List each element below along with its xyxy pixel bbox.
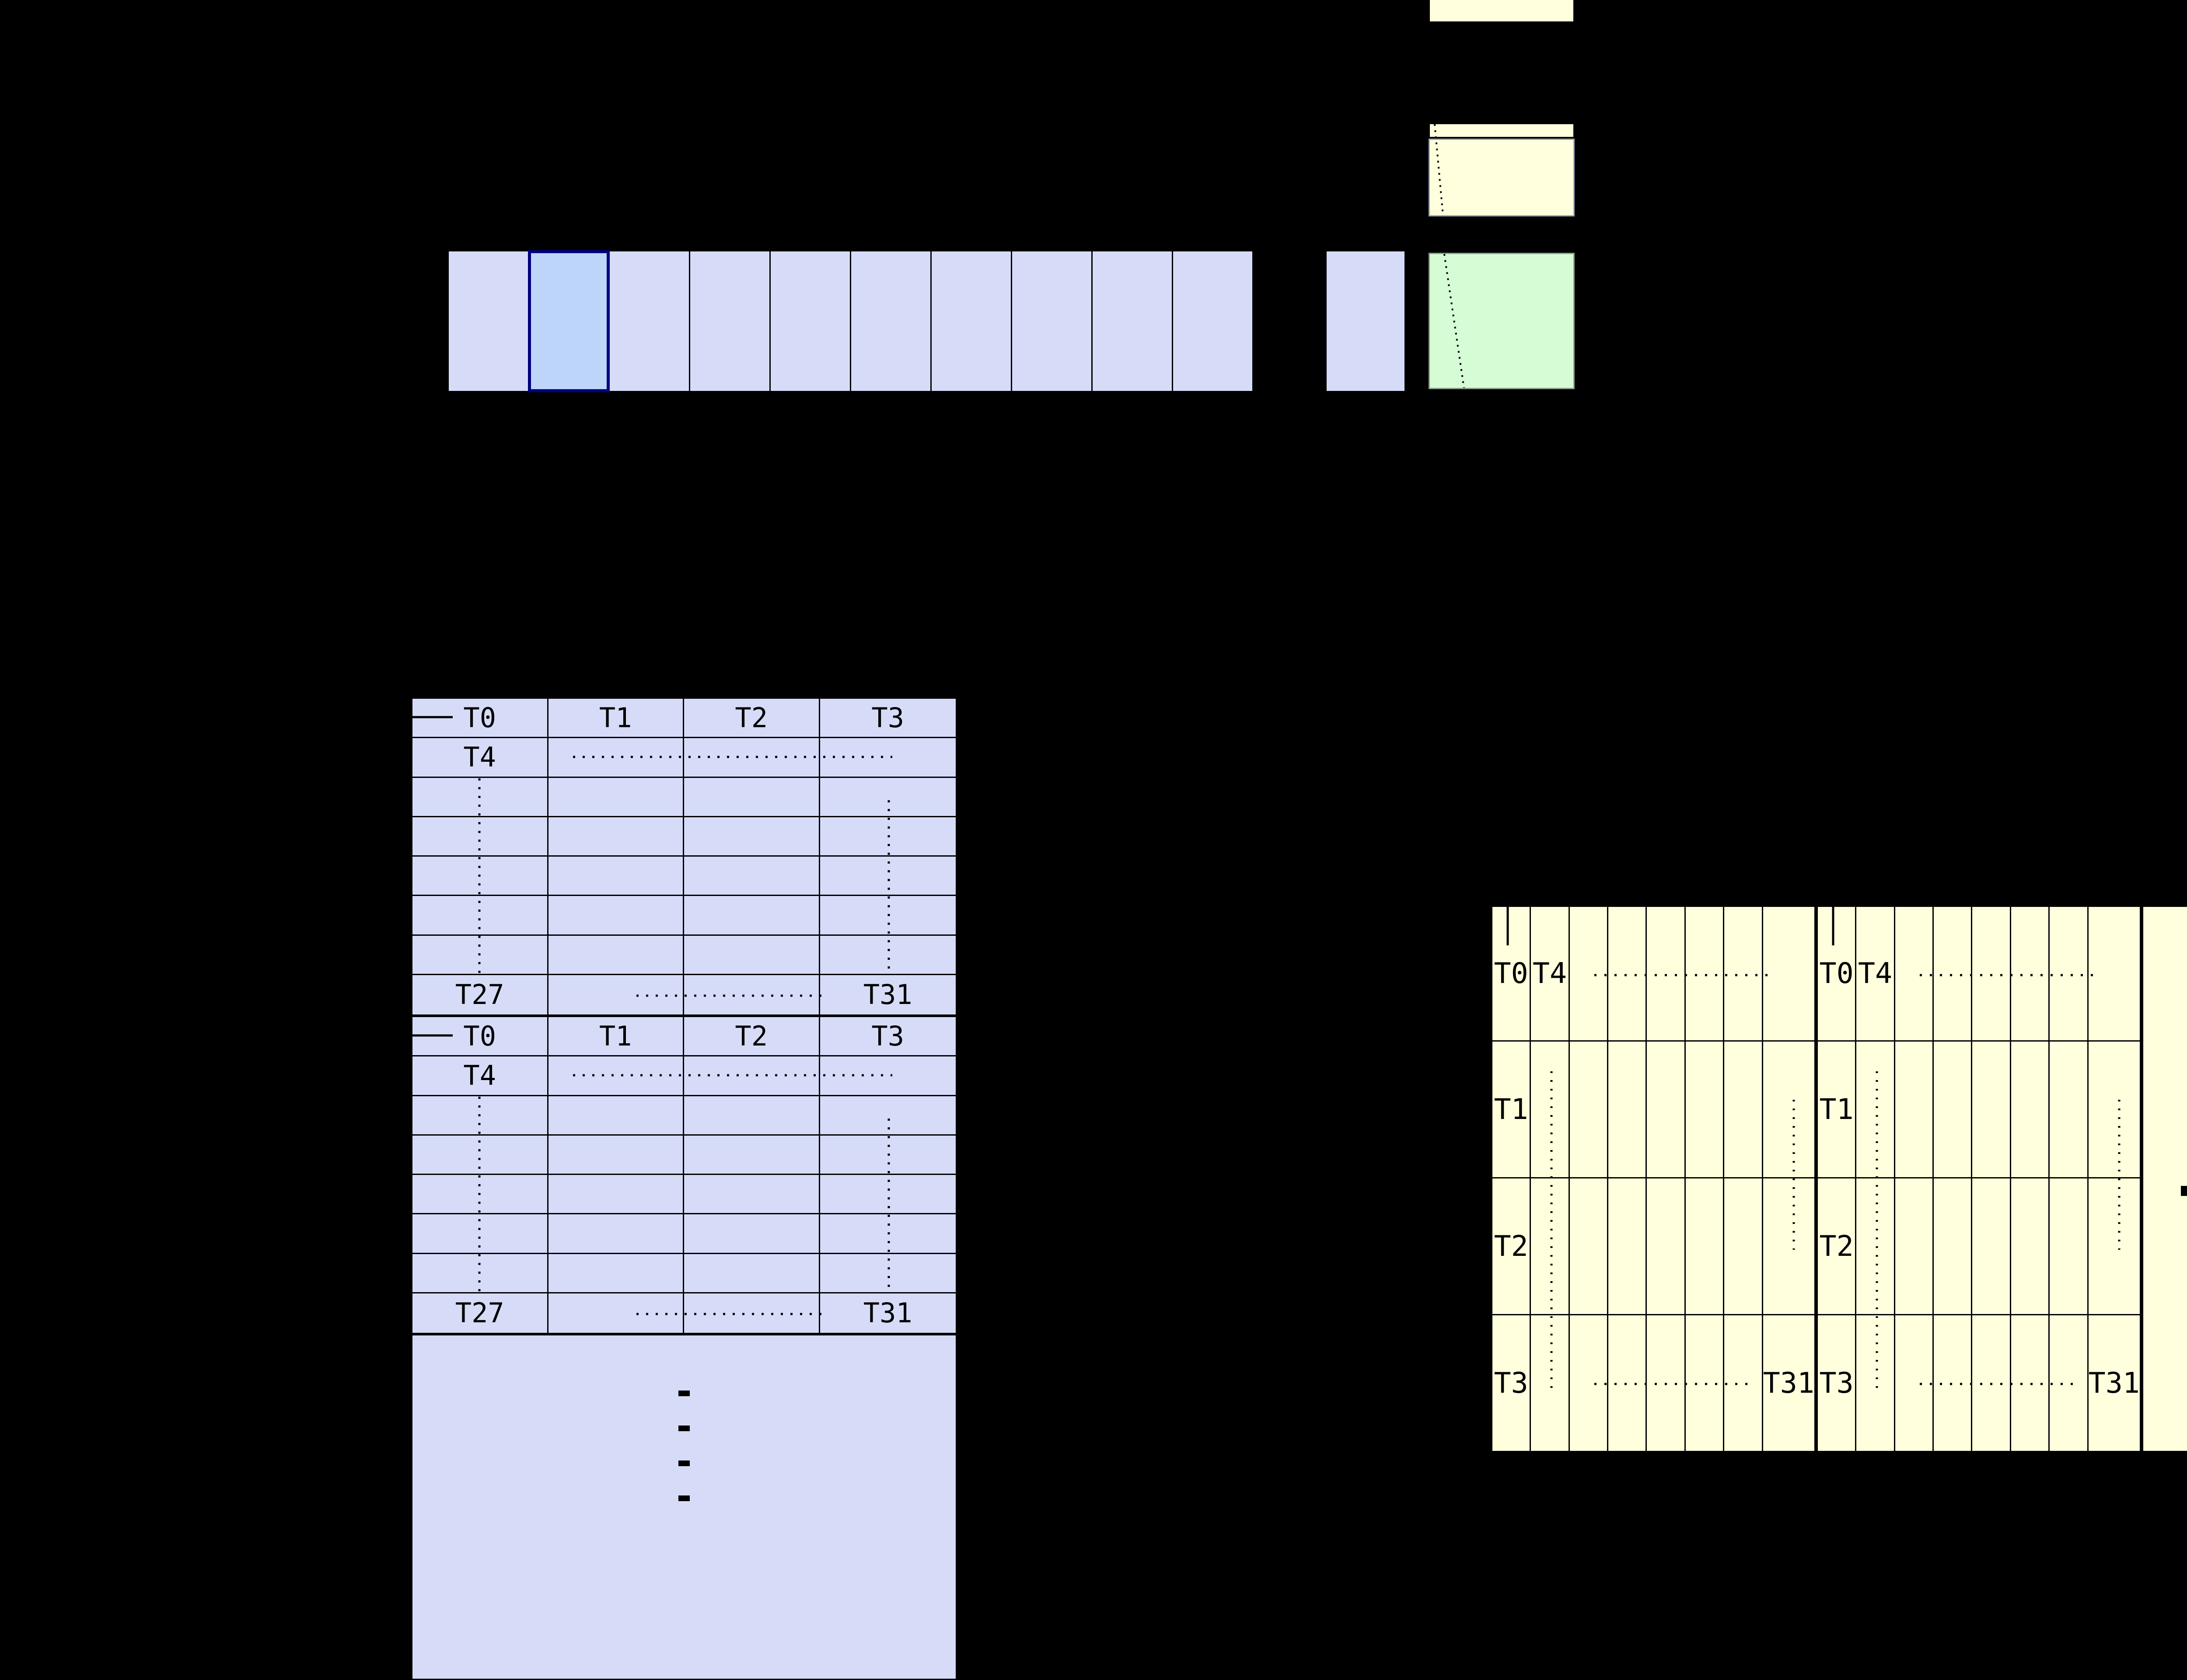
- label: T3: [1494, 1369, 1528, 1398]
- table-cell: [548, 778, 685, 817]
- table-cell: [2089, 907, 2140, 1042]
- table-cell: [1647, 1315, 1685, 1451]
- table-cell: [1972, 1315, 2011, 1451]
- cell-T27: T27: [412, 1293, 548, 1333]
- label: T31: [863, 1300, 912, 1327]
- cell-T1: T1: [548, 699, 685, 738]
- cell-T0: T0: [1818, 907, 1856, 1042]
- table-cell: [548, 1136, 685, 1175]
- table-cell: [412, 778, 548, 817]
- label: T31: [2089, 1369, 2140, 1398]
- thread-table-group-2: T0 T1 T2 T3 T4 T27 T31: [411, 1016, 957, 1334]
- label: T1: [599, 704, 632, 732]
- yellow-strip: [1429, 123, 1575, 139]
- table-cell: [684, 1175, 820, 1214]
- table-cell: [684, 817, 820, 857]
- block-cell: [1012, 251, 1093, 391]
- table-cell: [1856, 1178, 1895, 1315]
- cell-T27: T27: [412, 975, 548, 1014]
- label: T2: [1494, 1232, 1528, 1261]
- cell-T0: T0: [412, 1017, 548, 1056]
- table-cell: [1608, 1178, 1647, 1315]
- cell-T1: T1: [1492, 1042, 1531, 1178]
- table-cell: [684, 1136, 820, 1175]
- table-cell: [1570, 907, 1608, 1042]
- table-cell: [2011, 1315, 2050, 1451]
- table-cell: [412, 936, 548, 975]
- table-cell: [684, 1056, 820, 1096]
- label: T3: [1820, 1369, 1854, 1398]
- table-cell: [1570, 1178, 1608, 1315]
- table-cell: [1856, 1315, 1895, 1451]
- table-cell: [1724, 1178, 1763, 1315]
- label: T31: [863, 981, 912, 1008]
- ellipsis-dot: [2181, 1186, 2187, 1196]
- block-cell: [610, 251, 690, 391]
- cell-T4: T4: [412, 738, 548, 777]
- table-cell: [1531, 1178, 1569, 1315]
- table-cell: [1972, 1178, 2011, 1315]
- ellipsis-dash: [678, 1426, 690, 1431]
- table-cell: [684, 738, 820, 777]
- block-cell: [1093, 251, 1173, 391]
- table-cell: [820, 896, 956, 935]
- label: T2: [735, 704, 768, 732]
- table-cell: [412, 1096, 548, 1136]
- table-cell: [412, 1175, 548, 1214]
- table-cell: [1763, 907, 1814, 1042]
- table-cell: [548, 1096, 685, 1136]
- block-row: [447, 250, 1254, 392]
- block-cell: [449, 251, 529, 391]
- block-cell: [851, 251, 932, 391]
- label: T4: [1858, 959, 1892, 988]
- table-cell: [2089, 1042, 2140, 1178]
- table-cell: [2011, 1042, 2050, 1178]
- label: T1: [1820, 1095, 1854, 1124]
- cell-T3: T3: [1818, 1315, 1856, 1451]
- label: T0: [1494, 959, 1528, 988]
- warp-subtable-1: T0 T4 T1 T2 T3 T31: [1492, 907, 1818, 1451]
- cell-T31: T31: [820, 1293, 956, 1333]
- cell-T31: T31: [1763, 1315, 1814, 1451]
- table-cell: [1724, 907, 1763, 1042]
- table-cell: [820, 817, 956, 857]
- label: T4: [1533, 959, 1567, 988]
- label: T4: [463, 744, 496, 771]
- separate-block-cell: [1325, 250, 1406, 392]
- label: T0: [463, 704, 496, 732]
- table-cell: [548, 1175, 685, 1214]
- table-cell: [1531, 1042, 1569, 1178]
- table-cell: [1647, 1042, 1685, 1178]
- cell-T31: T31: [820, 975, 956, 1014]
- block-cell: [932, 251, 1012, 391]
- table-cell: [412, 1136, 548, 1175]
- cell-T2: T2: [1818, 1178, 1856, 1315]
- thread-table-continuation-block: [411, 1334, 957, 1680]
- table-cell: [684, 1096, 820, 1136]
- table-cell: [548, 1254, 685, 1293]
- cell-T4: T4: [412, 1056, 548, 1096]
- table-cell: [548, 1214, 685, 1254]
- table-cell: [1724, 1315, 1763, 1451]
- table-cell: [548, 936, 685, 975]
- cell-T2: T2: [684, 1017, 820, 1056]
- table-cell: [1934, 1042, 1972, 1178]
- cell-T0: T0: [1492, 907, 1531, 1042]
- table-cell: [412, 896, 548, 935]
- green-panel: [1429, 253, 1575, 389]
- cell-T4: T4: [1856, 907, 1895, 1042]
- table-cell: [412, 857, 548, 896]
- table-cell: [548, 1056, 685, 1096]
- table-cell: [1686, 907, 1724, 1042]
- table-cell: [684, 778, 820, 817]
- table-cell: [2050, 1042, 2088, 1178]
- label: T2: [735, 1023, 768, 1050]
- cell-T1: T1: [1818, 1042, 1856, 1178]
- ellipsis-dash: [678, 1391, 690, 1396]
- table-cell: [684, 896, 820, 935]
- table-cell: [1972, 1042, 2011, 1178]
- label: T31: [1763, 1369, 1814, 1398]
- table-cell: [820, 857, 956, 896]
- table-cell: [820, 1136, 956, 1175]
- table-cell: [412, 817, 548, 857]
- table-cell: [1686, 1315, 1724, 1451]
- diagram-stage: T0 T1 T2 T3 T4 T27 T31 T0 T1 T2 T3 T4 T2…: [0, 0, 2187, 1680]
- label: T0: [463, 1023, 496, 1050]
- table-cell: [1856, 1042, 1895, 1178]
- table-cell: [1895, 1042, 1934, 1178]
- table-cell: [820, 1056, 956, 1096]
- table-cell: [2089, 1178, 2140, 1315]
- table-cell: [1570, 1042, 1608, 1178]
- table-cell: [548, 975, 685, 1014]
- table-cell: [2011, 1178, 2050, 1315]
- table-cell: [2050, 907, 2088, 1042]
- cell-T2: T2: [684, 699, 820, 738]
- label: T2: [1820, 1232, 1854, 1261]
- block-cell: [690, 251, 771, 391]
- table-cell: [820, 936, 956, 975]
- table-cell: [820, 1214, 956, 1254]
- label: T0: [1820, 959, 1854, 988]
- table-cell: [548, 817, 685, 857]
- table-cell: [548, 738, 685, 777]
- table-cell: [1895, 1178, 1934, 1315]
- table-cell: [1895, 907, 1934, 1042]
- cell-T31: T31: [2089, 1315, 2140, 1451]
- table-cell: [412, 1254, 548, 1293]
- table-cell: [1763, 1042, 1814, 1178]
- table-cell: [1724, 1042, 1763, 1178]
- table-cell: [1686, 1042, 1724, 1178]
- label: T27: [455, 981, 504, 1008]
- table-cell: [684, 936, 820, 975]
- table-cell: [2011, 907, 2050, 1042]
- table-cell: [548, 857, 685, 896]
- label: T3: [871, 704, 904, 732]
- table-cell: [1608, 1042, 1647, 1178]
- table-cell: [820, 738, 956, 777]
- table-cell: [684, 975, 820, 1014]
- ellipsis-dash: [678, 1460, 690, 1466]
- label: T3: [871, 1023, 904, 1050]
- label: T1: [1494, 1095, 1528, 1124]
- highlighted-block-cell: [529, 251, 610, 391]
- table-cell: [1647, 907, 1685, 1042]
- warp-subtable-2: T0 T4 T1 T2 T3 T31: [1818, 907, 2143, 1451]
- table-cell: [2050, 1178, 2088, 1315]
- block-cell: [1173, 251, 1252, 391]
- table-cell: [1895, 1315, 1934, 1451]
- cell-T4: T4: [1531, 907, 1569, 1042]
- table-cell: [1972, 907, 2011, 1042]
- yellow-panel: [1429, 139, 1575, 216]
- label: T27: [455, 1300, 504, 1327]
- table-cell: [548, 1293, 685, 1333]
- table-cell: [1608, 907, 1647, 1042]
- table-cell: [1608, 1315, 1647, 1451]
- table-cell: [820, 1175, 956, 1214]
- cell-T3: T3: [820, 699, 956, 738]
- table-cell: [1934, 907, 1972, 1042]
- table-cell: [684, 1254, 820, 1293]
- cell-T0: T0: [412, 699, 548, 738]
- label: T4: [463, 1062, 496, 1089]
- cell-T2: T2: [1492, 1178, 1531, 1315]
- warp-table: T0 T4 T1 T2 T3 T31 T0 T4 T1 T2 T3 T31: [1491, 905, 2187, 1453]
- table-cell: [412, 1214, 548, 1254]
- table-cell: [820, 1254, 956, 1293]
- table-cell: [820, 1096, 956, 1136]
- table-cell: [1686, 1178, 1724, 1315]
- table-cell: [684, 1214, 820, 1254]
- table-cell: [548, 896, 685, 935]
- ellipsis-dash: [678, 1495, 690, 1501]
- table-cell: [684, 1293, 820, 1333]
- block-cell: [771, 251, 851, 391]
- yellow-box-top-cut: [1429, 0, 1575, 23]
- thread-table-group-1: T0 T1 T2 T3 T4 T27 T31: [411, 697, 957, 1016]
- table-cell: [1570, 1315, 1608, 1451]
- table-cell: [684, 857, 820, 896]
- table-cell: [1763, 1178, 1814, 1315]
- cell-T1: T1: [548, 1017, 685, 1056]
- label: T1: [599, 1023, 632, 1050]
- table-cell: [1934, 1178, 1972, 1315]
- cell-T3: T3: [820, 1017, 956, 1056]
- table-cell: [1531, 1315, 1569, 1451]
- table-cell: [2050, 1315, 2088, 1451]
- table-cell: [1934, 1315, 1972, 1451]
- cell-T3: T3: [1492, 1315, 1531, 1451]
- table-cell: [820, 778, 956, 817]
- table-cell: [1647, 1178, 1685, 1315]
